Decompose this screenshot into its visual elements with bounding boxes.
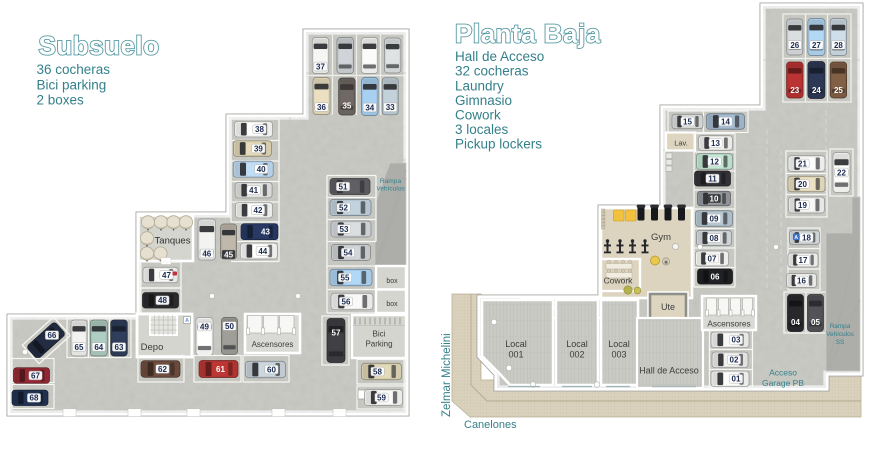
svg-text:03: 03 [732,336,741,345]
svg-text:36 cocheras: 36 cocheras [37,62,111,77]
svg-text:53: 53 [340,225,349,234]
svg-text:Vehículos: Vehículos [376,186,405,193]
svg-text:57: 57 [332,328,341,337]
svg-text:Vehículos: Vehículos [826,331,854,338]
svg-text:Canelones: Canelones [464,419,517,431]
svg-text:43: 43 [261,228,270,237]
svg-text:Local: Local [566,339,588,349]
svg-text:14: 14 [721,117,730,126]
svg-text:46: 46 [202,249,211,258]
svg-text:Cowork: Cowork [604,276,634,286]
svg-text:◉: ◉ [664,260,669,266]
svg-text:07: 07 [708,254,717,263]
svg-text:04: 04 [791,318,800,327]
svg-text:Gimnasio: Gimnasio [455,93,512,108]
svg-text:58: 58 [373,367,382,376]
svg-text:Laundry: Laundry [455,79,504,94]
svg-text:67: 67 [31,371,40,380]
svg-text:Hall de Acceso: Hall de Acceso [455,49,544,64]
svg-text:Rampa: Rampa [830,323,851,330]
svg-text:003: 003 [611,350,626,360]
svg-text:Gym: Gym [651,232,671,243]
svg-text:box: box [386,278,398,285]
svg-text:2 boxes: 2 boxes [37,93,85,108]
svg-text:24: 24 [812,86,821,95]
svg-text:Ascensores: Ascensores [252,340,294,349]
svg-text:68: 68 [30,394,39,403]
svg-text:19: 19 [798,201,807,210]
svg-text:50: 50 [225,322,234,331]
svg-text:002: 002 [569,350,584,360]
svg-text:Ute: Ute [661,302,675,312]
svg-text:33: 33 [386,103,395,112]
svg-text:13: 13 [711,139,720,148]
svg-text:51: 51 [339,182,348,191]
svg-text:3 locales: 3 locales [455,122,509,137]
svg-text:60: 60 [267,365,276,374]
svg-text:42: 42 [254,206,263,215]
svg-text:01: 01 [732,375,741,384]
svg-text:61: 61 [216,365,225,374]
svg-text:63: 63 [115,343,124,352]
svg-text:41: 41 [249,186,258,195]
svg-text:A: A [794,235,798,241]
svg-text:box: box [386,301,398,308]
svg-text:Garage PB: Garage PB [762,378,804,388]
svg-text:27: 27 [812,41,821,50]
svg-text:001: 001 [508,350,523,360]
svg-text:Hall de Acceso: Hall de Acceso [639,366,699,376]
svg-text:48: 48 [158,296,167,305]
svg-text:35: 35 [342,101,351,110]
svg-text:36: 36 [317,103,326,112]
svg-text:Depo: Depo [141,342,164,353]
svg-text:32 cocheras: 32 cocheras [455,64,529,79]
svg-text:59: 59 [377,393,386,402]
svg-text:54: 54 [344,248,353,257]
svg-text:Pickup lockers: Pickup lockers [455,137,542,152]
svg-text:56: 56 [342,297,351,306]
svg-text:Subsuelo: Subsuelo [39,31,160,61]
svg-text:21: 21 [798,159,807,168]
svg-text:62: 62 [158,365,167,374]
svg-text:65: 65 [75,343,84,352]
svg-text:12: 12 [710,157,719,166]
svg-text:37: 37 [316,62,325,71]
svg-text:06: 06 [711,272,720,281]
svg-text:Local: Local [608,339,630,349]
svg-text:02: 02 [730,356,739,365]
svg-text:17: 17 [799,256,808,265]
svg-text:Lav.: Lav. [674,139,688,148]
svg-text:23: 23 [790,86,799,95]
svg-text:10: 10 [710,194,719,203]
svg-text:A: A [185,318,189,324]
svg-text:SS: SS [836,339,845,346]
svg-text:Rampa: Rampa [380,178,402,185]
svg-text:26: 26 [790,41,799,50]
svg-text:Tanques: Tanques [155,236,191,247]
svg-text:Local: Local [505,339,527,349]
svg-text:15: 15 [683,117,692,126]
svg-text:47: 47 [162,271,171,280]
svg-text:25: 25 [834,86,843,95]
svg-text:05: 05 [811,318,820,327]
svg-text:52: 52 [339,203,348,212]
svg-text:22: 22 [837,168,846,177]
svg-text:Bici: Bici [373,330,386,339]
svg-text:45: 45 [224,250,233,259]
svg-text:Acceso: Acceso [769,368,797,378]
svg-text:64: 64 [94,343,103,352]
svg-text:55: 55 [341,273,350,282]
svg-text:34: 34 [365,103,374,112]
svg-text:40: 40 [257,165,266,174]
svg-text:Bici parking: Bici parking [37,78,107,93]
svg-text:38: 38 [255,125,264,134]
svg-text:Zelmar Michelini: Zelmar Michelini [441,333,453,417]
svg-text:Planta Baja: Planta Baja [455,19,601,49]
svg-text:16: 16 [797,276,806,285]
svg-text:39: 39 [254,144,263,153]
svg-text:44: 44 [258,247,267,256]
svg-text:Parking: Parking [365,340,392,349]
svg-text:11: 11 [708,174,717,183]
svg-text:18: 18 [802,233,811,242]
svg-text:09: 09 [710,214,719,223]
svg-text:20: 20 [798,180,807,189]
svg-text:Cowork: Cowork [455,108,501,123]
svg-text:66: 66 [47,331,56,340]
svg-text:28: 28 [834,41,843,50]
svg-text:08: 08 [710,234,719,243]
svg-text:Ascensores: Ascensores [707,319,750,329]
svg-text:49: 49 [200,322,209,331]
